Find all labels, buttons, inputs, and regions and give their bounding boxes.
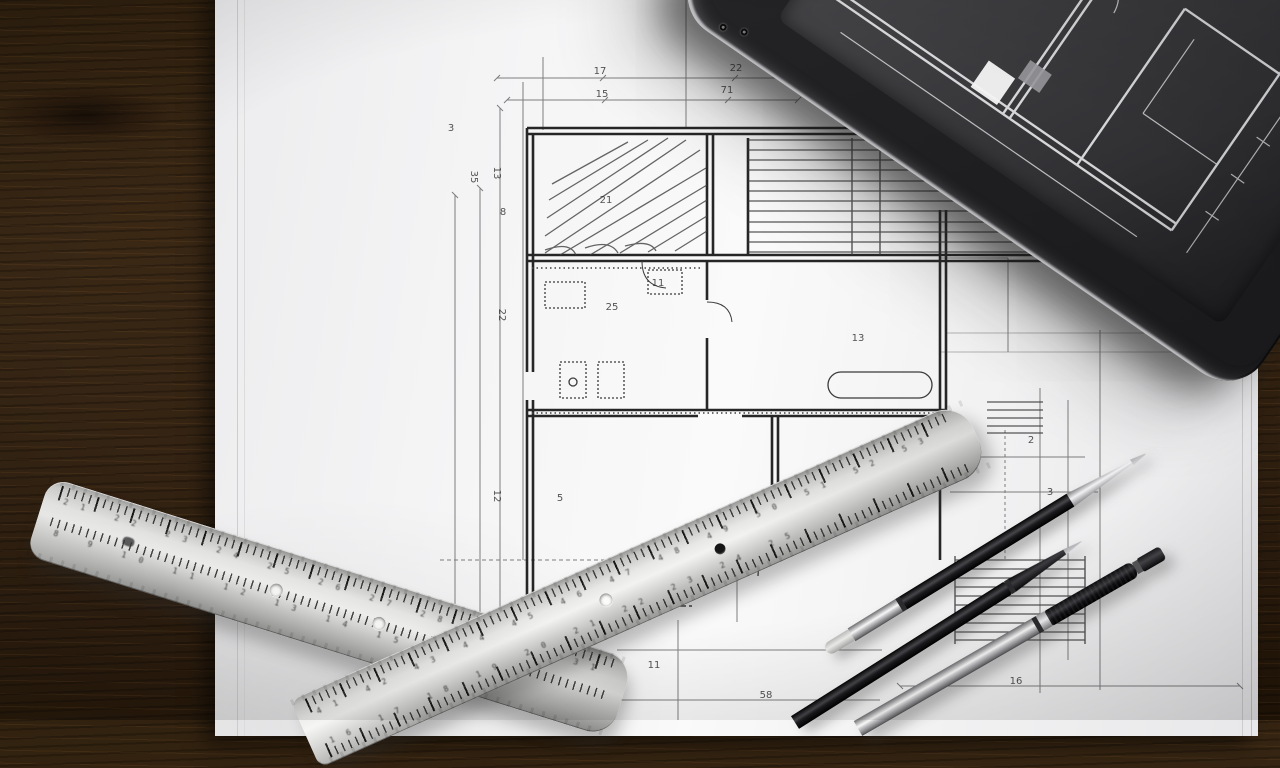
ruler-hole <box>597 591 614 608</box>
ruler-logo-mark <box>121 536 135 548</box>
tablet-camera-icon <box>739 27 749 37</box>
tablet-camera-icon <box>718 22 728 32</box>
ruler-pin-hole <box>713 542 728 557</box>
paper-edge-line <box>237 0 238 736</box>
paper-edge-line <box>244 0 245 736</box>
